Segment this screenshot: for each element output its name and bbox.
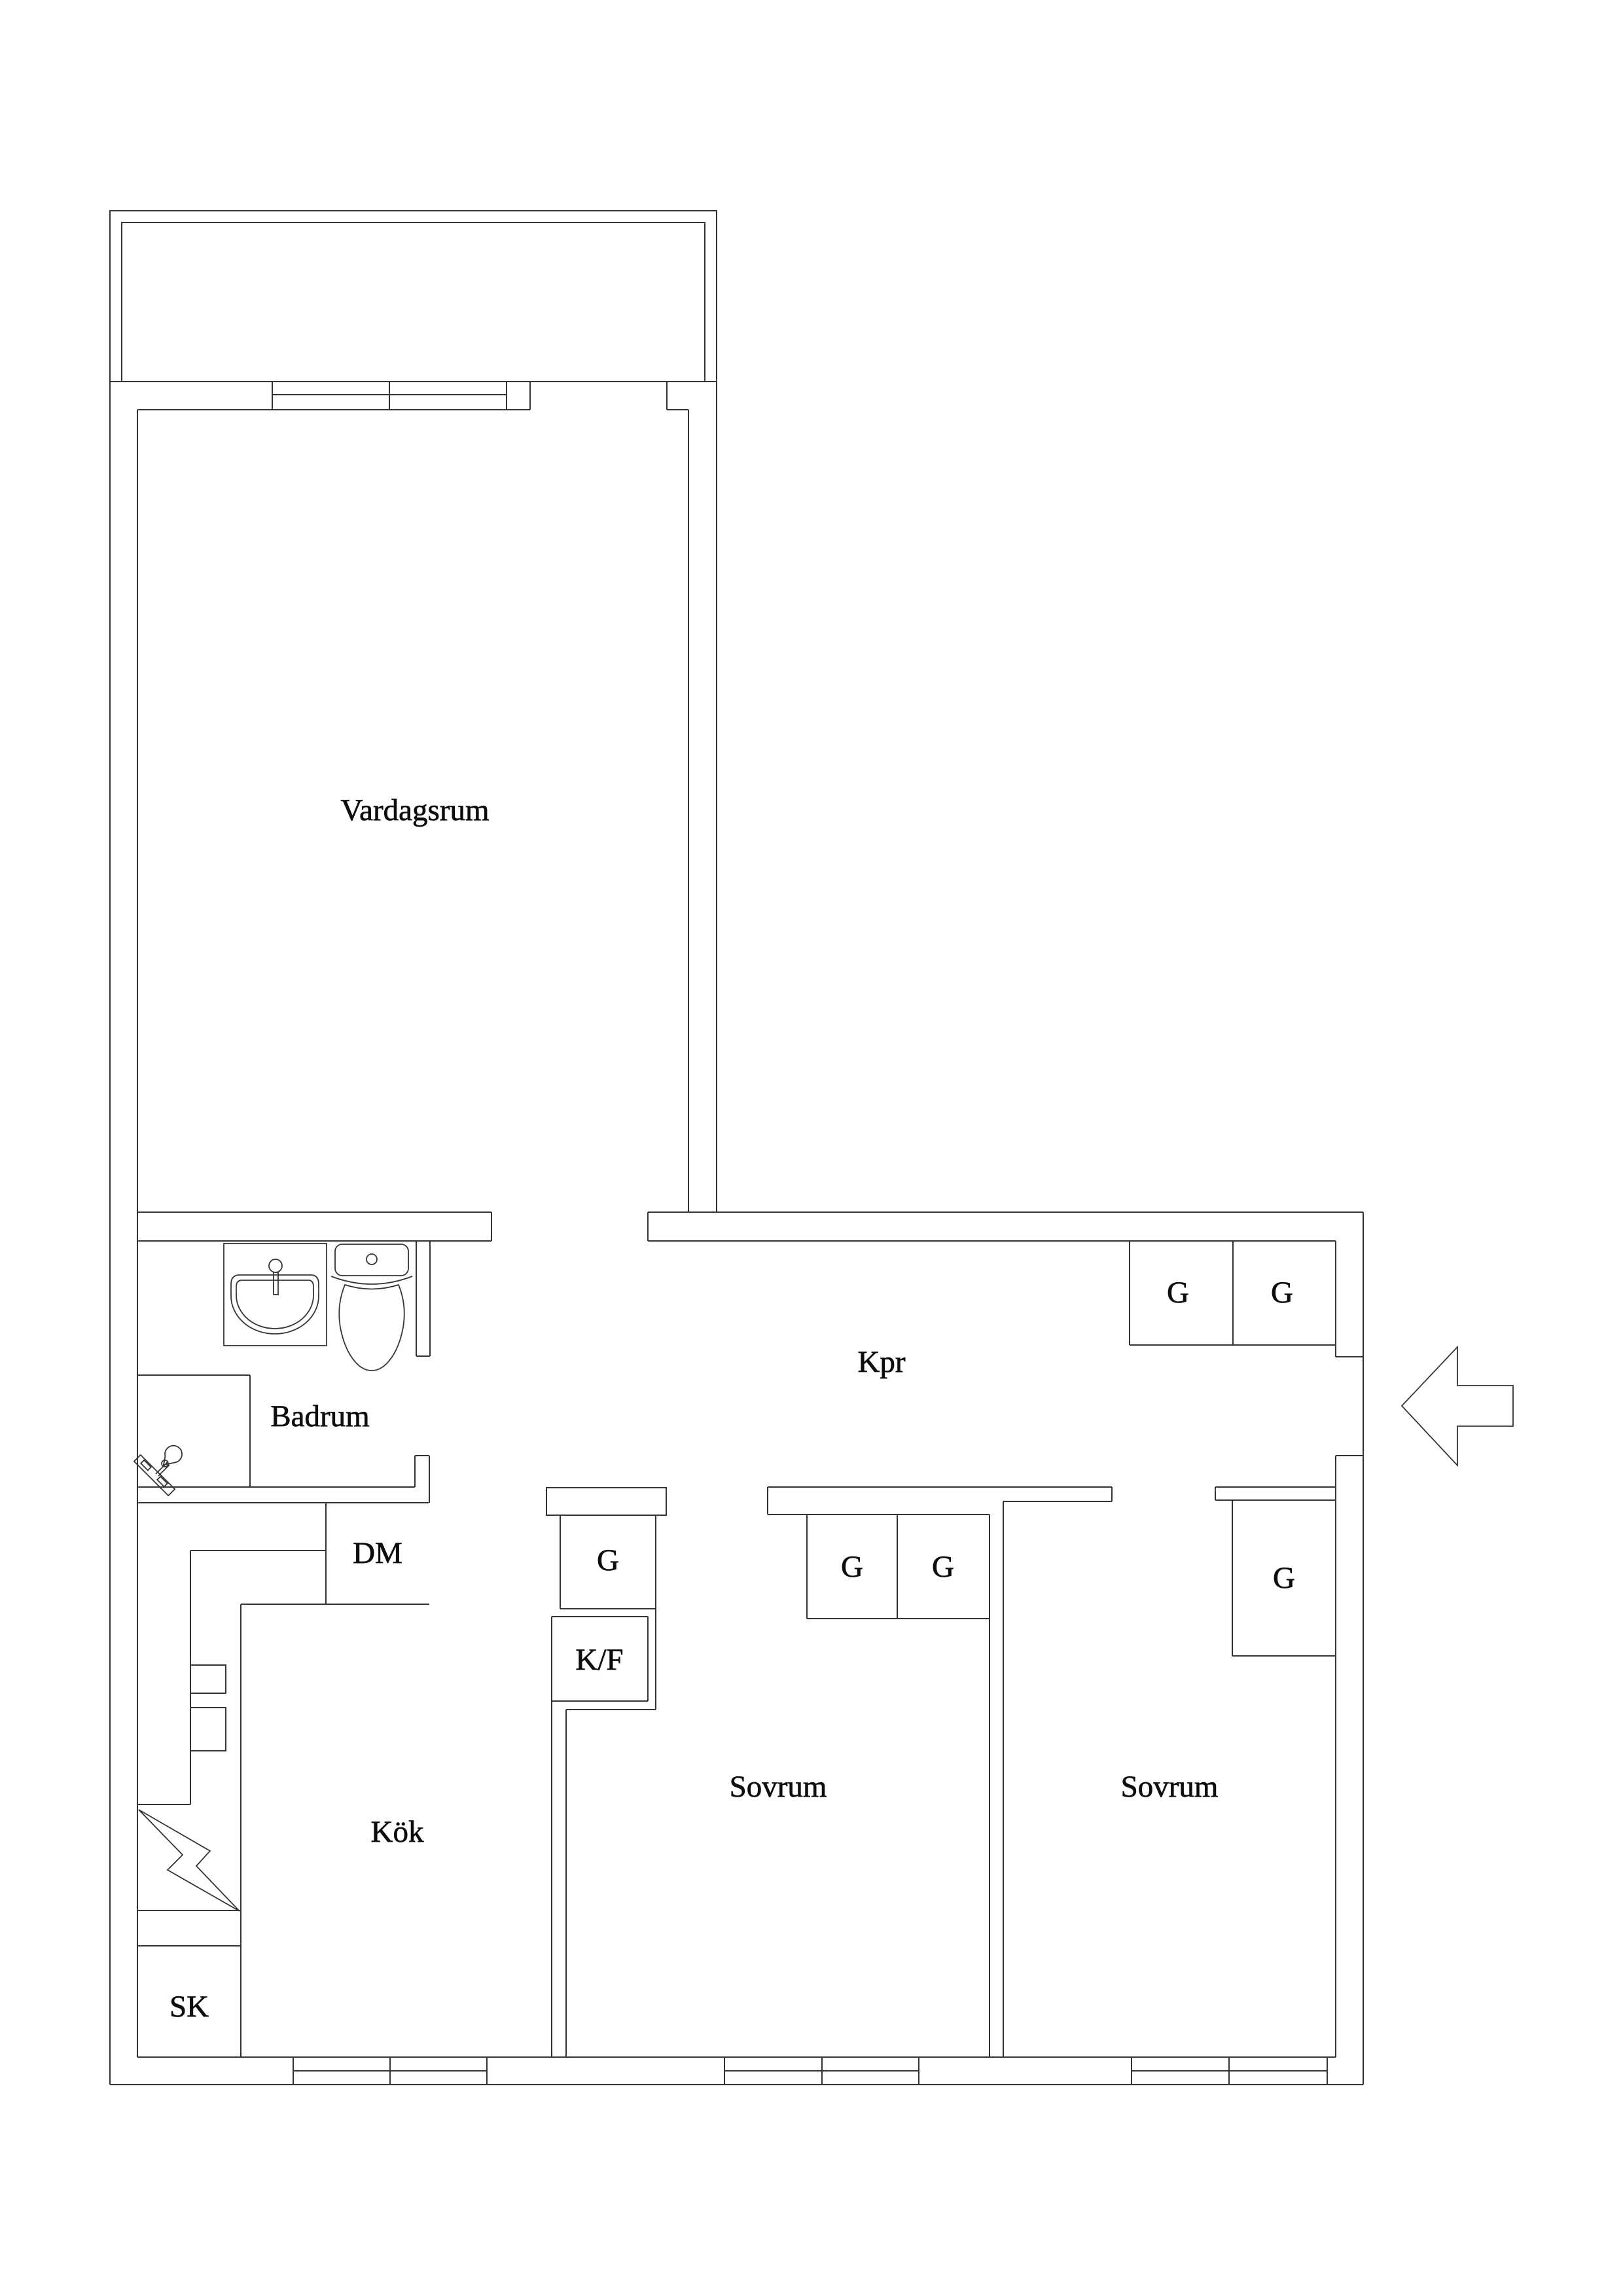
svg-text:K/F: K/F <box>575 1643 623 1677</box>
svg-text:Sovrum: Sovrum <box>730 1770 827 1804</box>
svg-text:SK: SK <box>169 1990 209 2024</box>
svg-text:G: G <box>1273 1561 1295 1595</box>
svg-text:Sovrum: Sovrum <box>1121 1770 1219 1804</box>
svg-text:Badrum: Badrum <box>270 1399 369 1433</box>
svg-text:G: G <box>597 1543 619 1577</box>
svg-text:G: G <box>1271 1276 1293 1310</box>
svg-text:G: G <box>1167 1276 1189 1310</box>
svg-text:Vardagsrum: Vardagsrum <box>340 793 489 827</box>
svg-text:G: G <box>841 1550 863 1584</box>
svg-text:DM: DM <box>353 1536 402 1570</box>
svg-text:Kök: Kök <box>371 1815 424 1849</box>
svg-text:G: G <box>932 1550 954 1584</box>
svg-text:Kpr: Kpr <box>857 1345 905 1379</box>
